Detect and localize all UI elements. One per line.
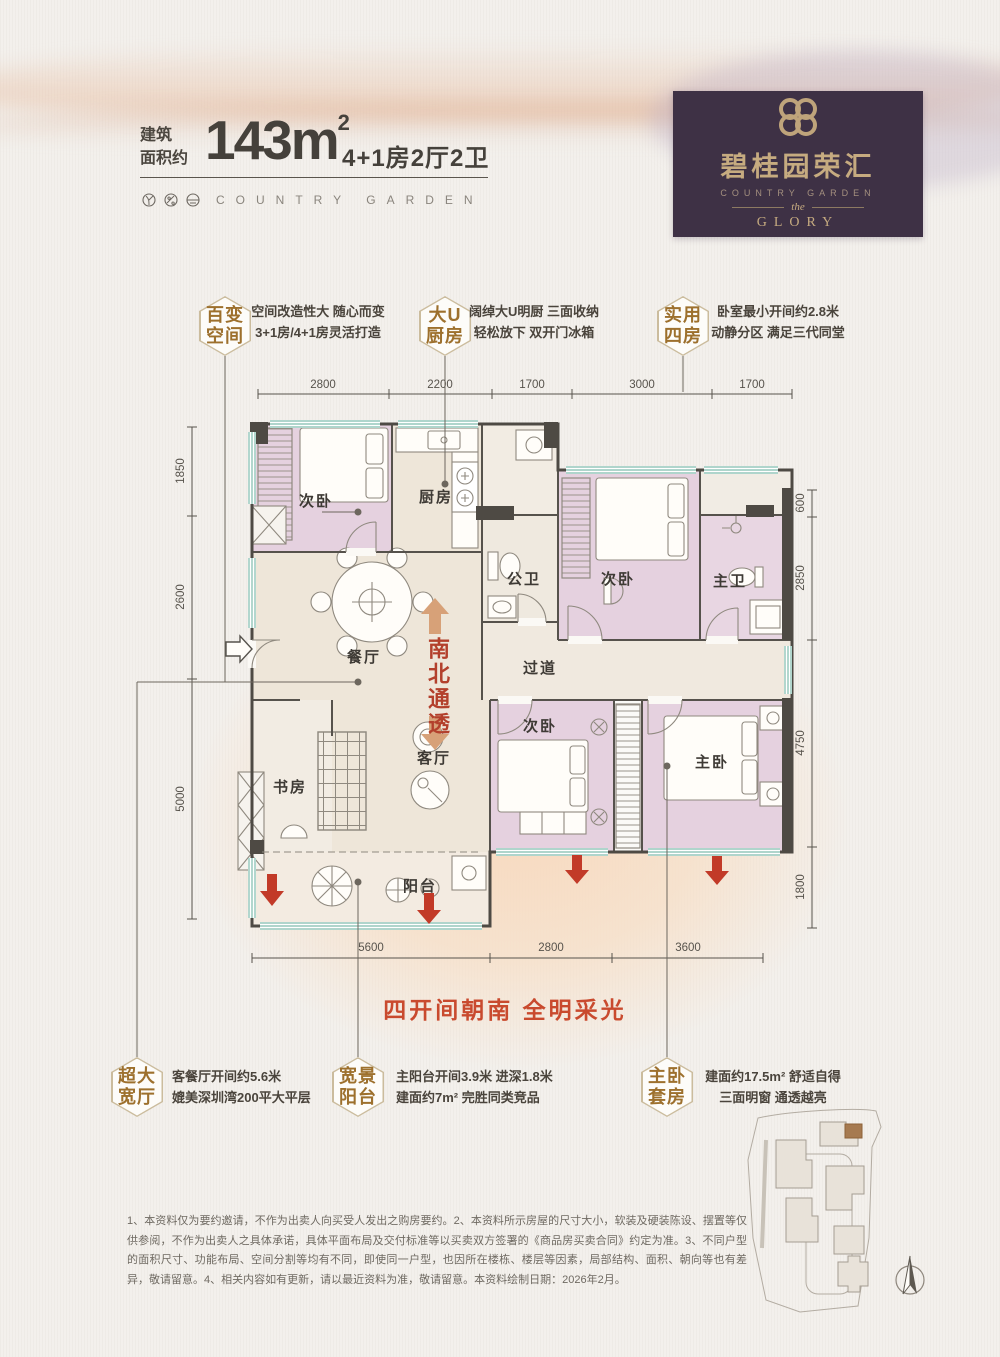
highlighted-building xyxy=(845,1124,862,1138)
floor-plan-drawing: 2800 2200 1700 3000 1700 5600 2800 3600 … xyxy=(0,0,1000,1357)
room-label-bath-master: 主卫 xyxy=(713,572,747,590)
room-label-kitchen: 厨房 xyxy=(419,488,453,506)
svg-text:2200: 2200 xyxy=(427,379,453,391)
floorplan-poster: 建筑 面积约 143m2 4+1房2厅2卫 COUNTRY GARDEN 碧桂园… xyxy=(0,0,1000,1357)
disclaimer-text: 1、本资料仅为要约邀请，不作为出卖人向买受人发出之购房要约。2、本资料所示房屋的… xyxy=(127,1212,747,1290)
orientation-banner: 四开间朝南 全明采光 xyxy=(355,991,655,1025)
north-south-label: 南北通透 xyxy=(421,637,453,737)
site-plan-map xyxy=(748,1109,881,1312)
room-label-bedroom-tl: 次卧 xyxy=(299,492,333,510)
room-label-living: 客厅 xyxy=(416,749,451,767)
svg-text:4750: 4750 xyxy=(795,730,807,756)
svg-text:2600: 2600 xyxy=(175,584,187,610)
svg-text:2850: 2850 xyxy=(795,565,807,591)
room-label-bath-public: 公卫 xyxy=(507,571,541,588)
svg-text:3600: 3600 xyxy=(675,942,701,954)
svg-text:5000: 5000 xyxy=(175,786,187,812)
svg-text:1800: 1800 xyxy=(795,874,807,900)
svg-text:5600: 5600 xyxy=(358,942,384,954)
svg-text:2800: 2800 xyxy=(310,379,336,391)
room-label-bedroom-bm: 次卧 xyxy=(523,717,557,735)
svg-text:1700: 1700 xyxy=(739,379,765,391)
compass-icon xyxy=(896,1256,924,1294)
room-label-dining: 餐厅 xyxy=(347,648,381,666)
svg-text:1700: 1700 xyxy=(519,379,545,391)
room-label-balcony: 阳台 xyxy=(403,877,437,895)
room-label-study: 书房 xyxy=(273,778,307,796)
room-label-bedroom-tr: 次卧 xyxy=(601,570,635,588)
room-label-bedroom-master: 主卧 xyxy=(695,753,729,771)
svg-text:1850: 1850 xyxy=(175,458,187,484)
svg-text:2800: 2800 xyxy=(538,942,564,954)
svg-text:3000: 3000 xyxy=(629,379,655,391)
room-label-hallway: 过道 xyxy=(523,659,557,677)
svg-text:600: 600 xyxy=(795,493,807,512)
